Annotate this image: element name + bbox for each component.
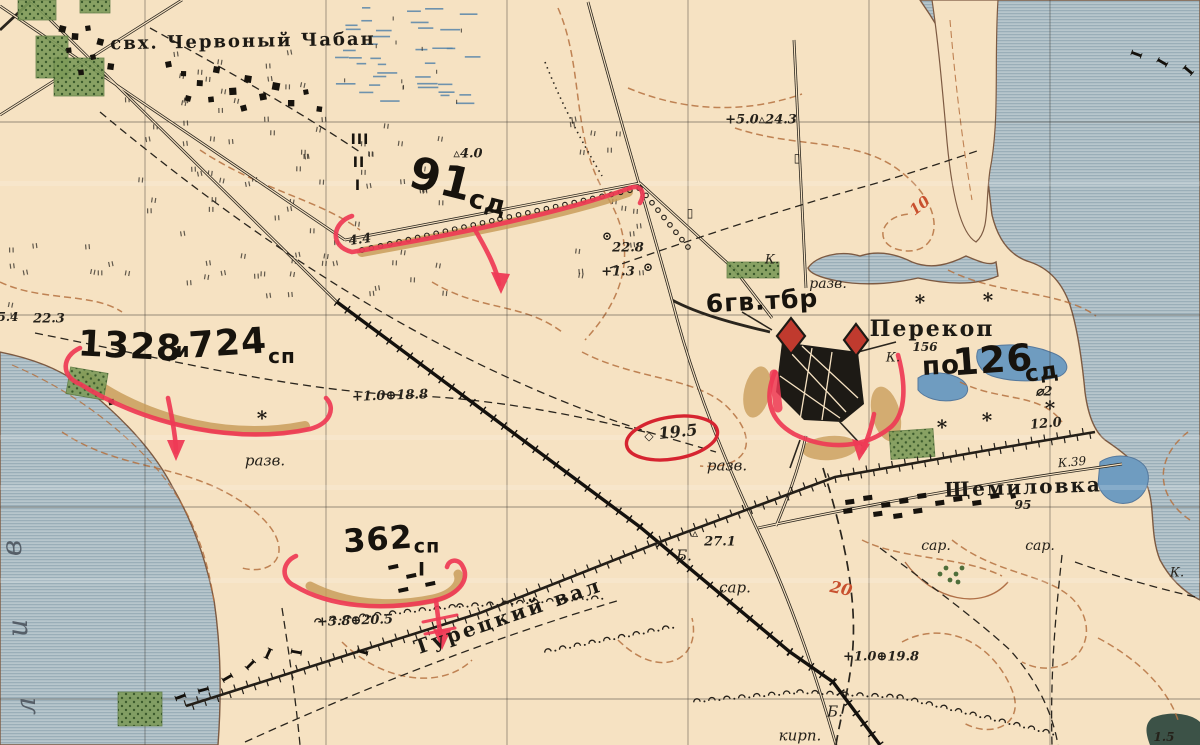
pond [1098, 456, 1148, 503]
map-linework [0, 0, 1200, 745]
dark-grove [1146, 714, 1200, 745]
topographic-map: свх. Червоный ЧабанПерекоп156Щемиловка95… [0, 0, 1200, 745]
